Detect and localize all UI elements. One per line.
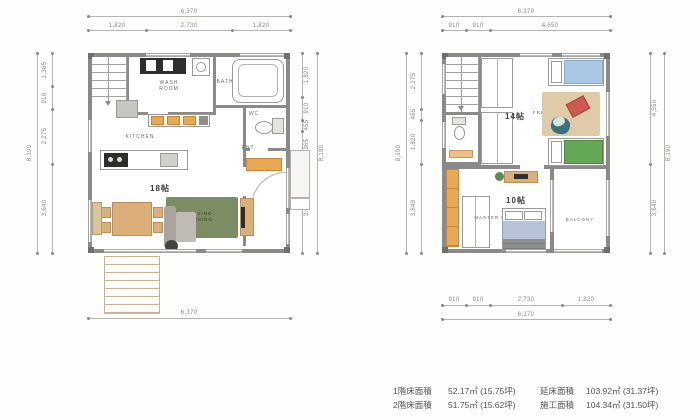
dim-line [442, 319, 610, 320]
bed-pillow [505, 211, 523, 220]
entrance-porch [290, 150, 310, 198]
dim-label: 8,190 [396, 133, 404, 173]
dim-tick [51, 85, 54, 88]
stair-rail [461, 57, 462, 112]
refrigerator [116, 100, 138, 118]
dim-label: 1,820 [97, 23, 137, 29]
dim-tick [420, 252, 423, 255]
wall-corner [284, 53, 290, 59]
toilet-2f [454, 126, 465, 140]
dim-tick [465, 304, 468, 307]
dim-label: 4,550 [652, 88, 660, 128]
toilet-mat [449, 150, 473, 158]
cupboard-cell [151, 116, 164, 125]
balcony-rail [554, 249, 602, 253]
dim-tick [51, 163, 54, 166]
area-value-total: 103.92㎡ (31.37坪) [586, 385, 658, 397]
dim-tick [289, 29, 292, 32]
label-14jo: 14帖 [500, 111, 530, 122]
area-value-2f: 51.75㎡ (15.62坪) [448, 399, 516, 411]
wall [446, 112, 478, 115]
tv [241, 207, 245, 228]
dim-tick [441, 318, 444, 321]
stair-rail [108, 57, 109, 104]
dim-tick [87, 29, 90, 32]
dim-label: 6,370 [506, 312, 546, 318]
wall [268, 148, 286, 151]
window [146, 53, 190, 57]
dim-tick [87, 15, 90, 18]
sofa-seat [176, 212, 196, 242]
area-value-construction: 104.34㎡ (31.50坪) [586, 399, 658, 411]
closet-door-line [497, 112, 498, 164]
bed-blanket-blue [564, 60, 603, 84]
dim-line [52, 53, 53, 253]
cupboard-cell [183, 116, 196, 125]
dim-tick [441, 304, 444, 307]
dim-label: 3,640 [411, 188, 419, 228]
dim-tick [420, 119, 423, 122]
dim-label: 1,820 [411, 122, 419, 162]
dim-line [37, 53, 38, 253]
dim-tick [316, 52, 319, 55]
bathtub-inner [238, 64, 278, 97]
dim-tick [301, 96, 304, 99]
dining-chair [101, 207, 111, 218]
master-bed-blanket [503, 221, 545, 239]
dim-tick [51, 252, 54, 255]
dim-label: 1,820 [566, 297, 606, 303]
area-label-construction: 施工面積 [540, 399, 574, 411]
dim-label: 910 [42, 78, 50, 118]
dining-chair [153, 207, 163, 218]
dim-tick [36, 252, 39, 255]
dim-tick [301, 119, 304, 122]
dim-tick [489, 29, 492, 32]
vanity-sink [163, 60, 173, 71]
dim-line [88, 318, 290, 319]
label-ent: ENT [234, 145, 262, 151]
label-wc: WC [246, 111, 262, 117]
window [606, 92, 610, 136]
dim-label: 6,370 [169, 9, 209, 15]
window [104, 249, 196, 253]
dim-tick [441, 29, 444, 32]
window [88, 120, 92, 152]
label-18jo: 18帖 [140, 183, 180, 194]
dim-tick [405, 252, 408, 255]
label-wash-room: WASH ROOM [156, 80, 182, 92]
wall [216, 105, 286, 108]
dim-tick [301, 252, 304, 255]
bed-pillow [524, 211, 542, 220]
counter-appliance [199, 116, 208, 125]
stove-burner [108, 157, 113, 162]
dim-tick [289, 317, 292, 320]
dim-tick [301, 130, 304, 133]
closet-door-line [475, 196, 476, 248]
window [506, 249, 546, 253]
dim-label: 1,820 [241, 23, 281, 29]
balcony-rail [606, 180, 610, 236]
dim-tick [289, 15, 292, 18]
dim-tick [145, 29, 148, 32]
dim-label: 6,370 [169, 310, 209, 316]
dim-line [442, 16, 610, 17]
stair-direction-arrow [458, 106, 464, 111]
dim-tick [301, 52, 304, 55]
bed-pillow [551, 61, 562, 83]
dim-tick [489, 304, 492, 307]
dim-label: 8,190 [319, 133, 327, 173]
dim-tick [231, 29, 234, 32]
dim-tick [87, 317, 90, 320]
entrance-opening [286, 168, 290, 208]
dim-label: 2,730 [506, 297, 546, 303]
master-closet [462, 196, 490, 248]
dim-tick [420, 52, 423, 55]
closet-door-line [497, 58, 498, 108]
stairs-2f [446, 57, 479, 112]
dim-label: 910 [458, 297, 498, 303]
dim-tick [609, 15, 612, 18]
shoe-cabinet [246, 158, 282, 171]
dim-tick [420, 108, 423, 111]
dim-line [406, 53, 407, 253]
dim-label: 910 [458, 23, 498, 29]
porch-step [290, 198, 310, 210]
area-value-1f: 52.17㎡ (15.75坪) [448, 385, 516, 397]
window [286, 214, 290, 244]
vanity-sink [146, 60, 156, 71]
cupboard-cell [167, 116, 180, 125]
deck-steps [104, 256, 160, 314]
dim-tick [663, 252, 666, 255]
window [442, 64, 446, 94]
dim-line [88, 16, 290, 17]
window [562, 53, 600, 57]
dim-line [421, 53, 422, 253]
tv-2f [514, 174, 528, 179]
dim-label: 6,370 [506, 9, 546, 15]
dim-tick [663, 52, 666, 55]
dim-label: 8,190 [27, 133, 35, 173]
dim-tick [609, 304, 612, 307]
area-label-2f: 2階床面積 [393, 399, 432, 411]
stairs-1f [92, 57, 127, 104]
dim-tick [420, 163, 423, 166]
dim-tick [51, 108, 54, 111]
label-10jo: 10帖 [502, 195, 530, 206]
dim-tick [561, 304, 564, 307]
wardrobe [446, 169, 459, 247]
dim-tick [465, 29, 468, 32]
wall-corner [604, 53, 610, 59]
dim-tick [609, 318, 612, 321]
plant [495, 172, 504, 181]
dim-label: 4,550 [530, 23, 570, 29]
toilet-1f [255, 121, 273, 134]
bed-pillow [551, 141, 562, 163]
window [442, 122, 446, 148]
dim-tick [609, 29, 612, 32]
dim-tick [649, 52, 652, 55]
dim-tick [441, 15, 444, 18]
window [520, 53, 552, 57]
washer-drum [196, 62, 206, 72]
window [206, 249, 242, 253]
dim-tick [316, 252, 319, 255]
balcony-sliding-door [550, 180, 554, 232]
dining-chair [153, 222, 163, 233]
wall-corner [442, 247, 448, 253]
dim-line [88, 30, 290, 31]
stair-direction-arrow [105, 101, 111, 106]
dim-line [650, 53, 651, 253]
dim-tick [405, 52, 408, 55]
wall-shelf [92, 202, 102, 235]
window [88, 200, 92, 242]
toilet-tank-2f [452, 117, 466, 125]
label-bath: BATH [210, 79, 240, 85]
dim-label: 3,640 [652, 188, 660, 228]
area-label-total: 延床面積 [540, 385, 574, 397]
dim-label: 3,640 [42, 188, 50, 228]
kitchen-sink [160, 153, 178, 167]
dim-tick [649, 163, 652, 166]
dim-label: 2,730 [169, 23, 209, 29]
stove-burner [117, 157, 122, 162]
wall-corner [284, 247, 290, 253]
dim-line [664, 53, 665, 253]
floor-plan-sheet: 6,370 1,820 2,730 1,820 8,190 1,365 910 … [0, 0, 700, 420]
dim-label: 2,275 [42, 116, 50, 156]
label-balcony: BALCONY [556, 217, 604, 223]
dining-chair [101, 222, 111, 233]
dim-line [317, 53, 318, 253]
dim-label: 8,190 [666, 133, 674, 173]
dim-tick [649, 252, 652, 255]
wall-corner [604, 247, 610, 253]
bed-blanket-green [564, 140, 603, 164]
window [240, 53, 284, 57]
dining-table [112, 202, 152, 236]
area-label-1f: 1階床面積 [393, 385, 432, 397]
dim-tick [51, 52, 54, 55]
dim-tick [36, 52, 39, 55]
label-kitchen: KITCHEN [110, 134, 170, 140]
wall-corner [88, 247, 94, 253]
toilet-tank-1f [272, 118, 284, 134]
